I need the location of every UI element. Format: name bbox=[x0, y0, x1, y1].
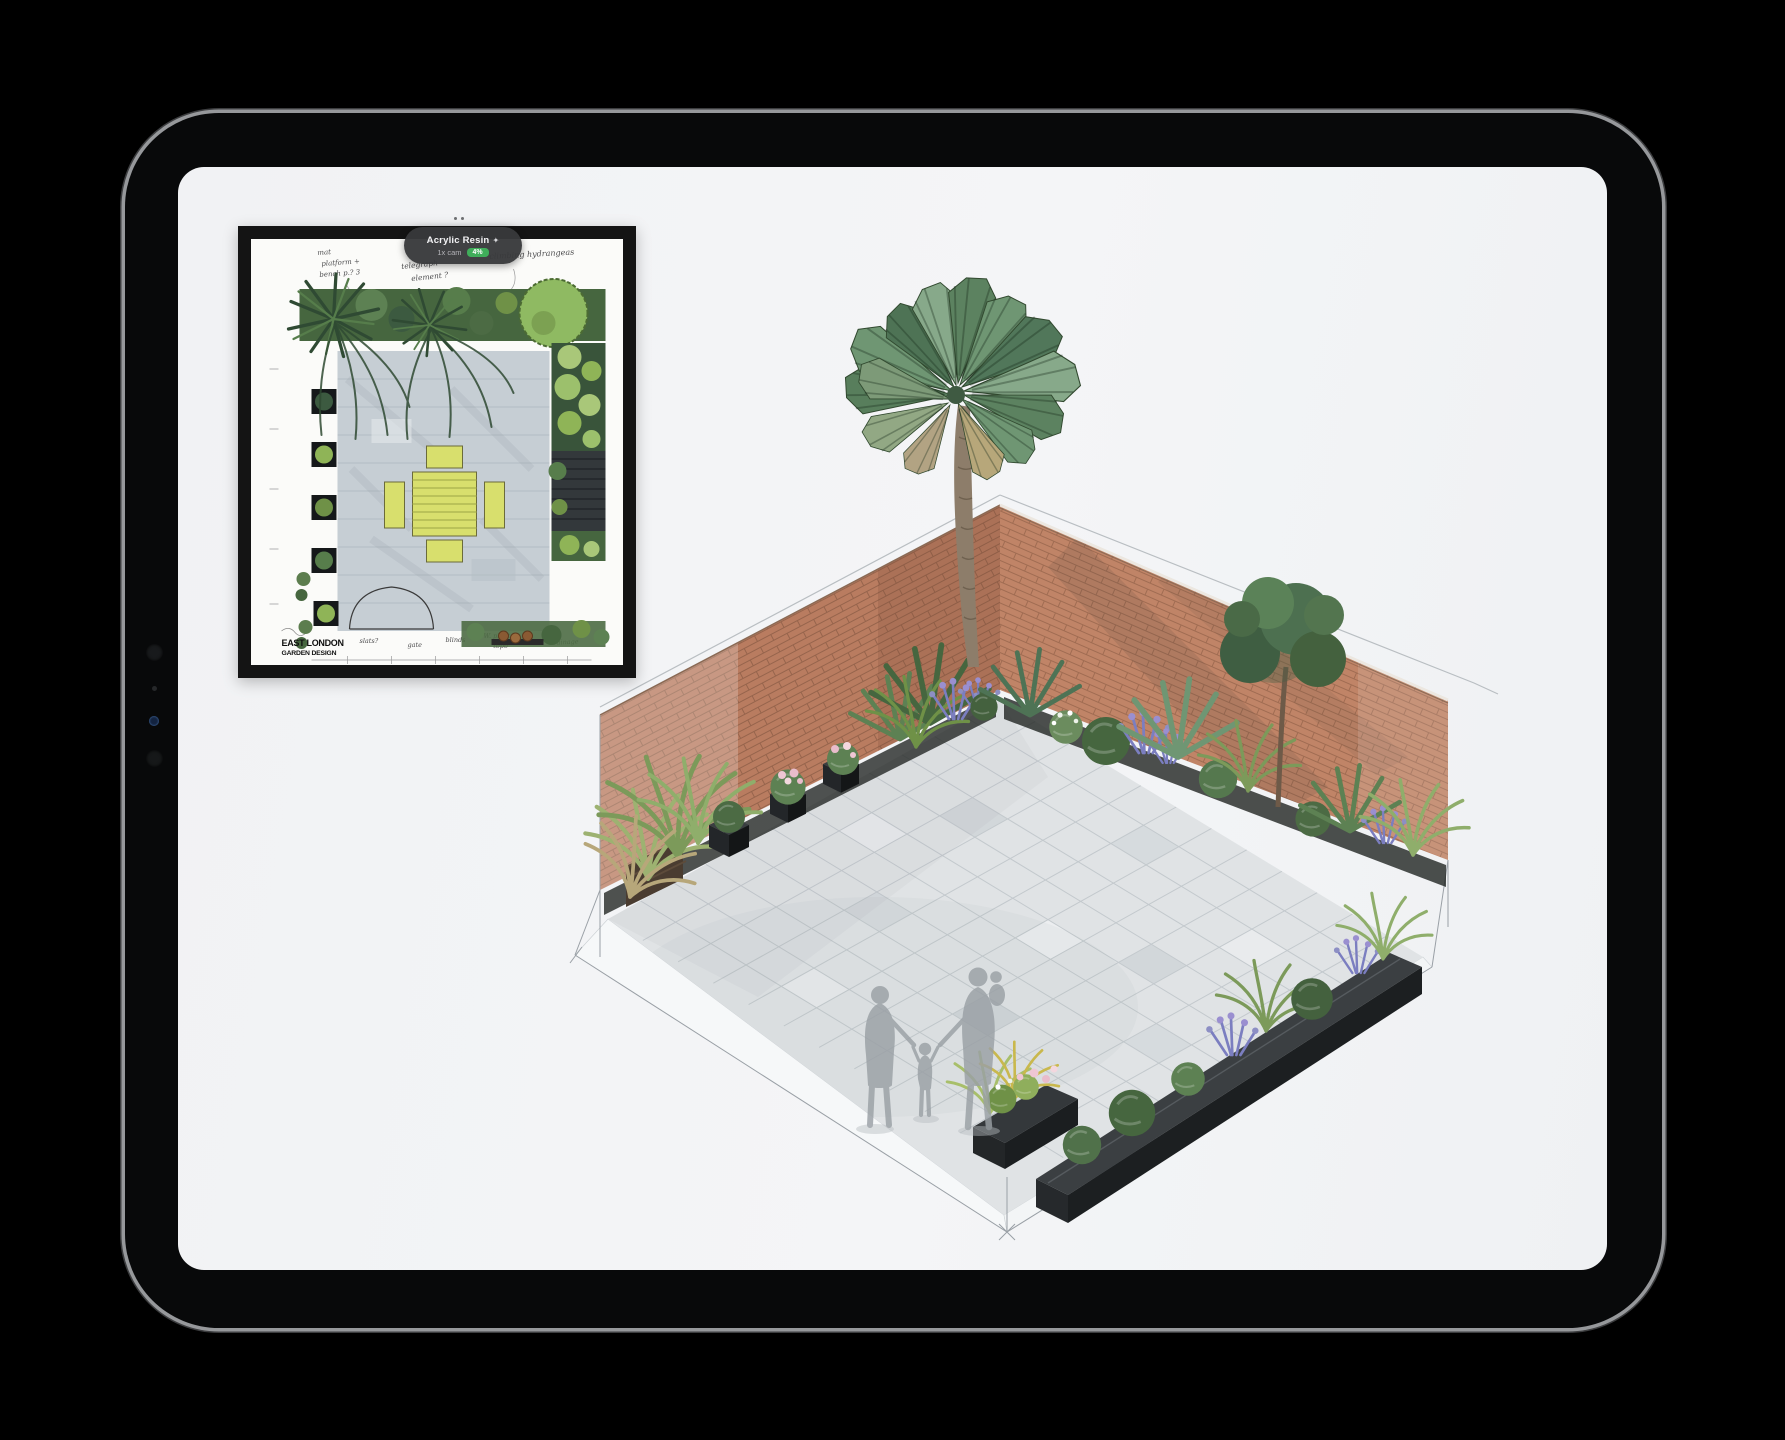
svg-text:gate: gate bbox=[408, 641, 423, 649]
plan-bottom-bed bbox=[462, 620, 610, 647]
tablet-screen: mat platform + bench p.? 3 telegraph ele… bbox=[178, 167, 1607, 1270]
drag-handle-dots[interactable] bbox=[454, 217, 464, 220]
tablet-device: mat platform + bench p.? 3 telegraph ele… bbox=[125, 113, 1662, 1328]
plan-reference-window[interactable]: mat platform + bench p.? 3 telegraph ele… bbox=[238, 226, 636, 678]
truedepth-sensor-icon bbox=[149, 716, 159, 726]
reference-title: Acrylic Resin ✦ bbox=[427, 235, 500, 246]
svg-text:slats?: slats? bbox=[360, 637, 379, 645]
front-camera-icon bbox=[146, 644, 163, 661]
reference-subtitle: 1x cam bbox=[437, 248, 461, 257]
cursor-icon: ✦ bbox=[492, 236, 499, 245]
status-badge: 4% bbox=[467, 248, 489, 257]
svg-text:GARDEN DESIGN: GARDEN DESIGN bbox=[282, 650, 337, 657]
plan-title-block: EAST LONDON GARDEN DESIGN bbox=[282, 638, 344, 657]
garden-plan-sketch: mat platform + bench p.? 3 telegraph ele… bbox=[251, 239, 623, 665]
svg-text:EAST LONDON: EAST LONDON bbox=[282, 638, 344, 648]
ambient-sensor-icon bbox=[152, 686, 157, 691]
front-camera2-icon bbox=[146, 750, 163, 767]
svg-text:mat: mat bbox=[317, 248, 331, 257]
reference-toolbar[interactable]: Acrylic Resin ✦ 1x cam 4% bbox=[404, 227, 522, 264]
plan-right-bed bbox=[549, 343, 606, 561]
